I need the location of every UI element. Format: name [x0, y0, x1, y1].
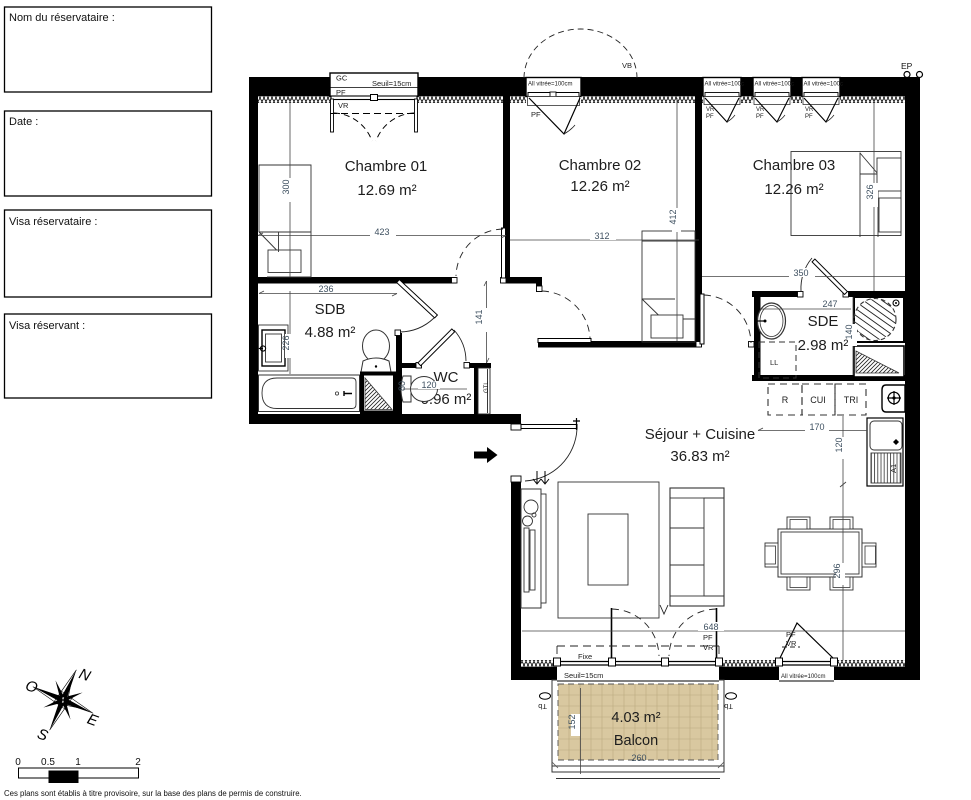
- svg-text:Fixe: Fixe: [578, 652, 592, 661]
- svg-text:152: 152: [567, 714, 577, 729]
- svg-text:236: 236: [318, 284, 333, 294]
- svg-text:SDE: SDE: [808, 313, 839, 330]
- svg-text:247: 247: [822, 299, 837, 309]
- svg-text:Tb: Tb: [538, 702, 547, 711]
- svg-text:GC: GC: [336, 74, 348, 83]
- svg-text:CUI: CUI: [810, 395, 826, 405]
- svg-text:Visa réservataire :: Visa réservataire :: [9, 216, 97, 228]
- svg-text:36.83 m²: 36.83 m²: [670, 448, 729, 465]
- svg-text:226: 226: [281, 335, 291, 350]
- svg-text:2: 2: [135, 757, 141, 768]
- svg-text:260: 260: [631, 753, 646, 763]
- svg-text:VR: VR: [786, 639, 797, 648]
- svg-text:296: 296: [832, 563, 842, 578]
- svg-text:VB: VB: [622, 61, 632, 70]
- svg-text:PF: PF: [703, 633, 713, 642]
- svg-text:141: 141: [474, 309, 484, 324]
- svg-text:Date :: Date :: [9, 116, 38, 128]
- svg-text:120: 120: [834, 437, 844, 452]
- svg-text:Seuil=15cm: Seuil=15cm: [564, 671, 603, 680]
- svg-text:Chambre 02: Chambre 02: [559, 157, 642, 174]
- svg-text:350: 350: [793, 268, 808, 278]
- svg-text:VR: VR: [703, 643, 714, 652]
- svg-text:12.26 m²: 12.26 m²: [764, 181, 823, 198]
- svg-text:PF: PF: [805, 114, 813, 120]
- svg-text:TRI: TRI: [844, 395, 859, 405]
- svg-text:All vitrée=100c: All vitrée=100c: [804, 82, 844, 88]
- svg-text:Balcon: Balcon: [614, 733, 658, 749]
- svg-text:120: 120: [421, 380, 436, 390]
- svg-text:Nom du réservataire :: Nom du réservataire :: [9, 12, 115, 24]
- svg-text:Séjour + Cuisine: Séjour + Cuisine: [645, 426, 755, 443]
- svg-text:12.26 m²: 12.26 m²: [570, 178, 629, 195]
- svg-text:140: 140: [844, 324, 854, 339]
- svg-text:4.03 m²: 4.03 m²: [611, 710, 660, 726]
- svg-text:SDB: SDB: [315, 301, 346, 318]
- svg-text:PF: PF: [706, 114, 714, 120]
- svg-text:170: 170: [809, 422, 824, 432]
- svg-text:12.69 m²: 12.69 m²: [357, 182, 416, 199]
- svg-text:0: 0: [15, 757, 21, 768]
- svg-text:4.88 m²: 4.88 m²: [305, 324, 356, 341]
- svg-text:All vitrée=100c: All vitrée=100c: [705, 82, 745, 88]
- svg-text:Chambre 03: Chambre 03: [753, 157, 836, 174]
- svg-text:326: 326: [865, 184, 875, 199]
- svg-text:GTL: GTL: [484, 381, 490, 393]
- svg-text:A1: A1: [889, 464, 898, 473]
- svg-text:All vitrée=100cm: All vitrée=100cm: [781, 674, 826, 680]
- svg-text:VR: VR: [338, 101, 349, 110]
- svg-text:PF: PF: [531, 110, 541, 119]
- svg-text:VR: VR: [756, 107, 765, 113]
- svg-text:PF: PF: [756, 114, 764, 120]
- svg-text:412: 412: [668, 209, 678, 224]
- svg-text:R: R: [782, 395, 789, 405]
- svg-text:80: 80: [397, 381, 407, 391]
- svg-text:Ces plans sont établis à titre: Ces plans sont établis à titre provisoir…: [4, 789, 302, 798]
- svg-text:EP: EP: [901, 61, 913, 71]
- svg-text:300: 300: [281, 179, 291, 194]
- svg-text:All vitrée=100c: All vitrée=100c: [755, 82, 795, 88]
- svg-text:1: 1: [75, 757, 81, 768]
- svg-text:LL: LL: [770, 358, 778, 367]
- svg-text:Seuil=15cm: Seuil=15cm: [372, 79, 411, 88]
- svg-text:2.98 m²: 2.98 m²: [798, 337, 849, 354]
- svg-text:0.5: 0.5: [41, 757, 55, 768]
- svg-text:Visa réservant :: Visa réservant :: [9, 320, 85, 332]
- svg-text:All vitrée=100cm: All vitrée=100cm: [528, 82, 573, 88]
- svg-text:Tb: Tb: [724, 702, 733, 711]
- svg-text:Chambre 01: Chambre 01: [345, 158, 428, 175]
- svg-text:312: 312: [594, 231, 609, 241]
- svg-text:648: 648: [703, 622, 718, 632]
- svg-text:VR: VR: [805, 107, 814, 113]
- svg-text:VR: VR: [706, 107, 715, 113]
- svg-text:423: 423: [374, 227, 389, 237]
